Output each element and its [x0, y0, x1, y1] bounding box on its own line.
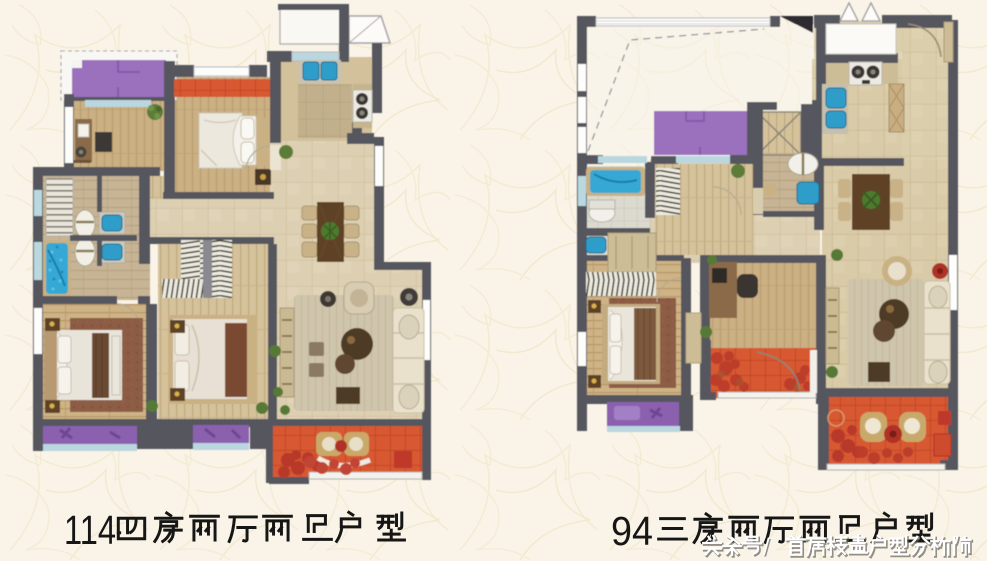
svg-text:94: 94 [611, 508, 653, 554]
svg-text:/: / [763, 534, 770, 561]
svg-text:114: 114 [64, 507, 116, 553]
